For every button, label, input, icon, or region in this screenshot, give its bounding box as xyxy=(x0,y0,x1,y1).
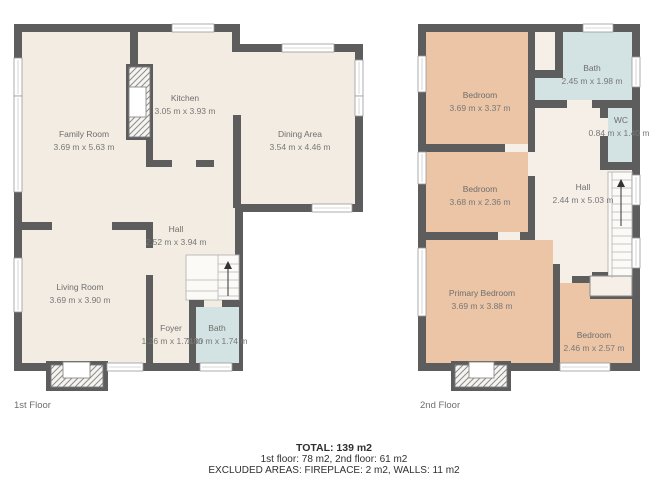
room-label-hall-1: Hall xyxy=(169,224,184,234)
room-label-foyer: Foyer xyxy=(160,323,182,333)
room-label-family-room: Family Room xyxy=(59,129,109,139)
room-label-bath-2: Bath xyxy=(583,63,601,73)
chimney xyxy=(46,361,108,391)
second-floor-caption: 2nd Floor xyxy=(420,400,460,411)
first-floor-exterior-walls xyxy=(18,28,359,367)
chimney-2 xyxy=(451,361,511,391)
bath-closet-nook xyxy=(535,32,555,70)
first-floor-plan: Family Room 3.69 m x 5.63 m Kitchen 3.05… xyxy=(14,24,363,411)
room-label-bedroom-top: Bedroom xyxy=(463,90,498,100)
room-label-hall-2: Hall xyxy=(576,182,591,192)
room-label-dining-area: Dining Area xyxy=(278,129,322,139)
fireplace xyxy=(126,64,153,140)
second-floor-plan: Bedroom 3.69 m x 3.37 m Bath 2.45 m x 1.… xyxy=(418,24,649,411)
room-dims-bath-2: 2.45 m x 1.98 m xyxy=(562,76,623,86)
room-label-bath-1: Bath xyxy=(208,323,226,333)
room-label-primary-bedroom: Primary Bedroom xyxy=(449,288,515,298)
first-floor-caption: 1st Floor xyxy=(14,400,51,411)
room-label-bedroom-mid: Bedroom xyxy=(463,184,498,194)
room-label-living-room: Living Room xyxy=(56,282,103,292)
room-dims-living-room: 3.69 m x 3.90 m xyxy=(50,295,111,305)
room-label-kitchen: Kitchen xyxy=(171,93,200,103)
first-floor-bath-floor xyxy=(196,307,239,363)
area-summary: TOTAL: 139 m2 1st floor: 78 m2, 2nd floo… xyxy=(0,443,668,476)
first-floor-stairwell xyxy=(186,255,239,300)
room-dims-dining-area: 3.54 m x 4.46 m xyxy=(270,142,331,152)
room-dims-bedroom-mid: 3.68 m x 2.36 m xyxy=(450,197,511,207)
room-dims-hall-1: 2.52 m x 3.94 m xyxy=(146,237,207,247)
room-dims-hall-2: 2.44 m x 5.03 m xyxy=(553,195,614,205)
floorplan-page: Family Room 3.69 m x 5.63 m Kitchen 3.05… xyxy=(0,0,668,501)
room-label-bedroom-bottom: Bedroom xyxy=(577,330,612,340)
floorplan-canvas: Family Room 3.69 m x 5.63 m Kitchen 3.05… xyxy=(0,0,668,430)
room-dims-primary-bedroom: 3.69 m x 3.88 m xyxy=(452,301,513,311)
bedroom-closet xyxy=(590,276,632,296)
room-dims-kitchen: 3.05 m x 3.93 m xyxy=(155,106,216,116)
total-area-text: TOTAL: 139 m2 xyxy=(0,443,668,454)
floor-areas-text: 1st floor: 78 m2, 2nd floor: 61 m2 xyxy=(0,454,668,465)
bedroom-top-floor xyxy=(426,32,528,144)
excluded-areas-text: EXCLUDED AREAS: FIREPLACE: 2 m2, WALLS: … xyxy=(0,465,668,476)
room-dims-wc: 0.84 m x 1.40 m xyxy=(589,128,650,138)
room-dims-bedroom-top: 3.69 m x 3.37 m xyxy=(450,103,511,113)
room-dims-family-room: 3.69 m x 5.63 m xyxy=(54,142,115,152)
room-dims-bath-1: 1.80 m x 1.74 m xyxy=(187,336,248,346)
room-dims-bedroom-bottom: 2.46 m x 2.57 m xyxy=(564,343,625,353)
room-label-wc: WC xyxy=(614,115,628,125)
